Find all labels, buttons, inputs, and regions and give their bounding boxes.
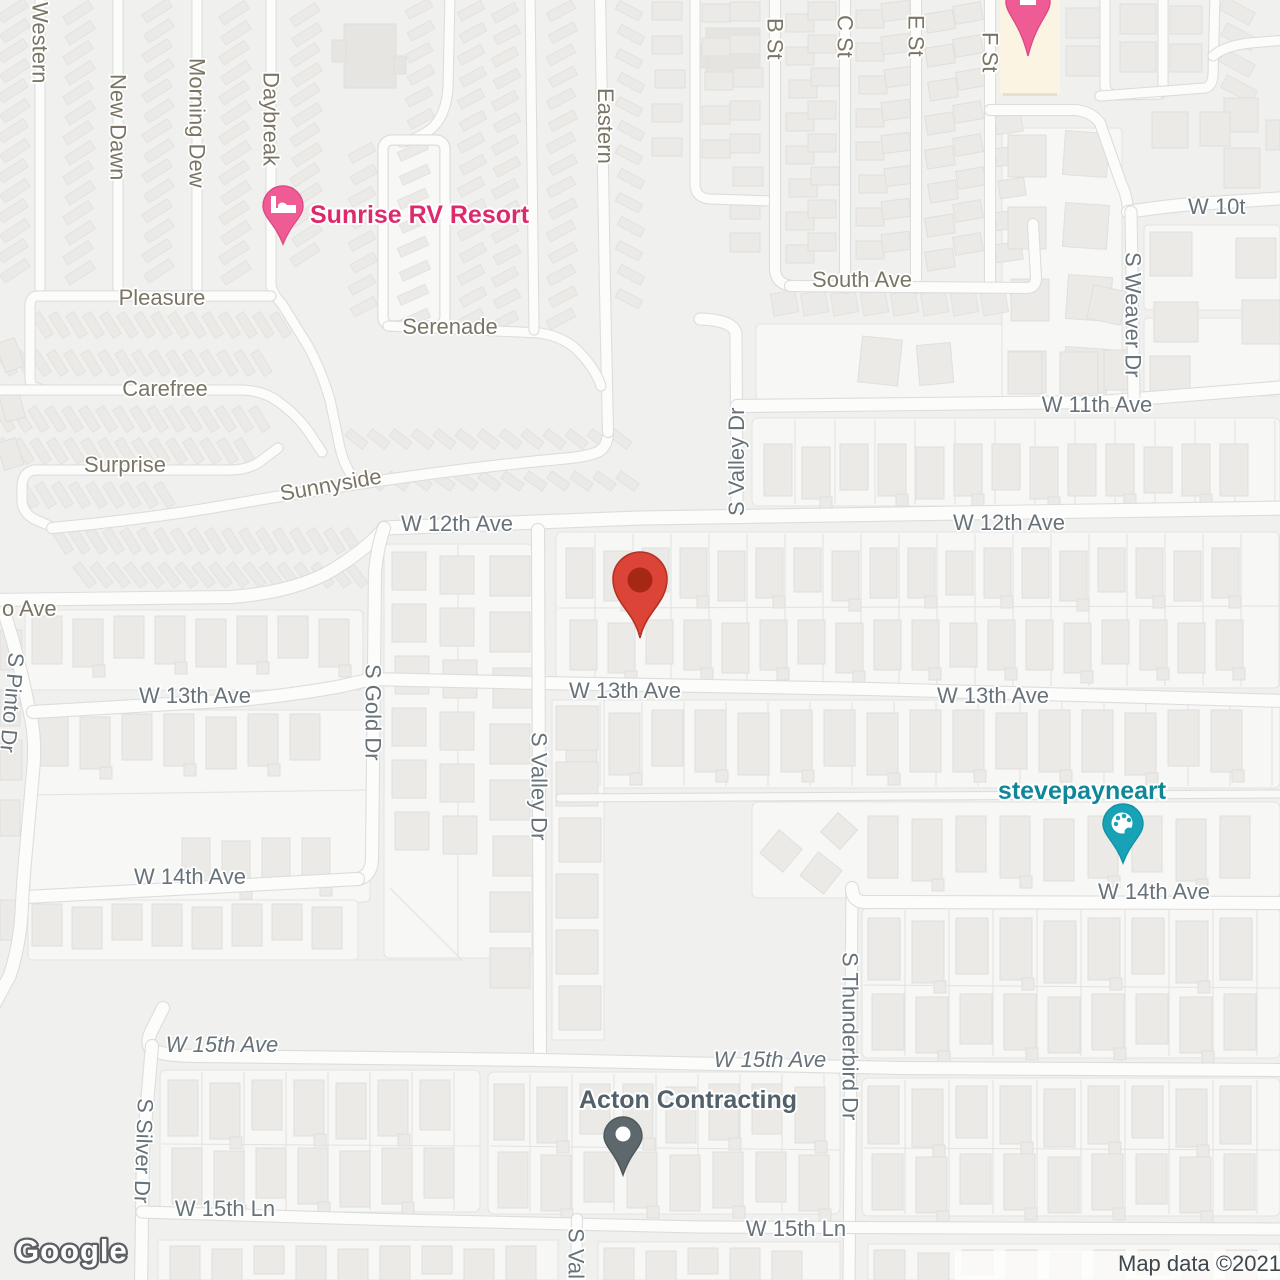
svg-text:W 14th Ave: W 14th Ave <box>134 864 246 889</box>
svg-text:W 12th Ave: W 12th Ave <box>953 510 1065 535</box>
svg-text:Google: Google <box>15 1233 128 1268</box>
svg-text:S Silver Dr: S Silver Dr <box>129 1098 158 1204</box>
svg-text:Map data ©2021: Map data ©2021 <box>1118 1251 1280 1276</box>
svg-text:W 13th Ave: W 13th Ave <box>139 683 251 708</box>
svg-text:Daybreak: Daybreak <box>259 72 284 167</box>
svg-text:Eastern: Eastern <box>593 88 618 164</box>
svg-text:S Weaver Dr: S Weaver Dr <box>1121 252 1146 378</box>
svg-text:o Ave: o Ave <box>2 596 57 621</box>
svg-text:South Ave: South Ave <box>812 267 912 292</box>
svg-text:S Gold Dr: S Gold Dr <box>361 664 386 761</box>
svg-text:C St: C St <box>833 15 858 58</box>
svg-text:W 13th Ave: W 13th Ave <box>937 683 1049 708</box>
svg-text:Carefree: Carefree <box>122 376 208 401</box>
svg-text:New Dawn: New Dawn <box>106 74 131 180</box>
svg-text:Surprise: Surprise <box>84 452 166 477</box>
svg-text:Pleasure: Pleasure <box>119 285 206 310</box>
svg-text:Acton Contracting: Acton Contracting <box>579 1086 797 1114</box>
svg-text:Western: Western <box>28 2 53 84</box>
svg-text:S Thunderbird Dr: S Thunderbird Dr <box>838 952 863 1120</box>
svg-text:W 15th Ln: W 15th Ln <box>175 1196 275 1221</box>
svg-text:S Valley Dr: S Valley Dr <box>724 408 749 516</box>
svg-text:B St: B St <box>763 18 788 60</box>
svg-text:Serenade: Serenade <box>402 314 497 339</box>
svg-text:stevepayneart: stevepayneart <box>998 777 1167 805</box>
svg-text:W 12th Ave: W 12th Ave <box>401 511 513 536</box>
svg-text:W 10t: W 10t <box>1188 194 1245 219</box>
svg-text:W 11th Ave: W 11th Ave <box>1042 392 1152 417</box>
svg-text:S Valley Dr: S Valley Dr <box>527 732 552 840</box>
svg-text:S Valley: S Valley <box>564 1228 589 1280</box>
svg-text:W 15th Ln: W 15th Ln <box>746 1216 846 1241</box>
svg-text:Sunrise RV Resort: Sunrise RV Resort <box>310 201 530 229</box>
svg-text:E St: E St <box>904 15 929 57</box>
svg-text:W 15th Ave: W 15th Ave <box>714 1047 827 1072</box>
svg-text:W 14th Ave: W 14th Ave <box>1098 879 1210 904</box>
svg-text:W 13th Ave: W 13th Ave <box>569 678 681 703</box>
svg-text:W 15th Ave: W 15th Ave <box>166 1032 279 1057</box>
svg-text:Morning Dew: Morning Dew <box>185 58 210 188</box>
svg-text:F St: F St <box>978 32 1003 72</box>
